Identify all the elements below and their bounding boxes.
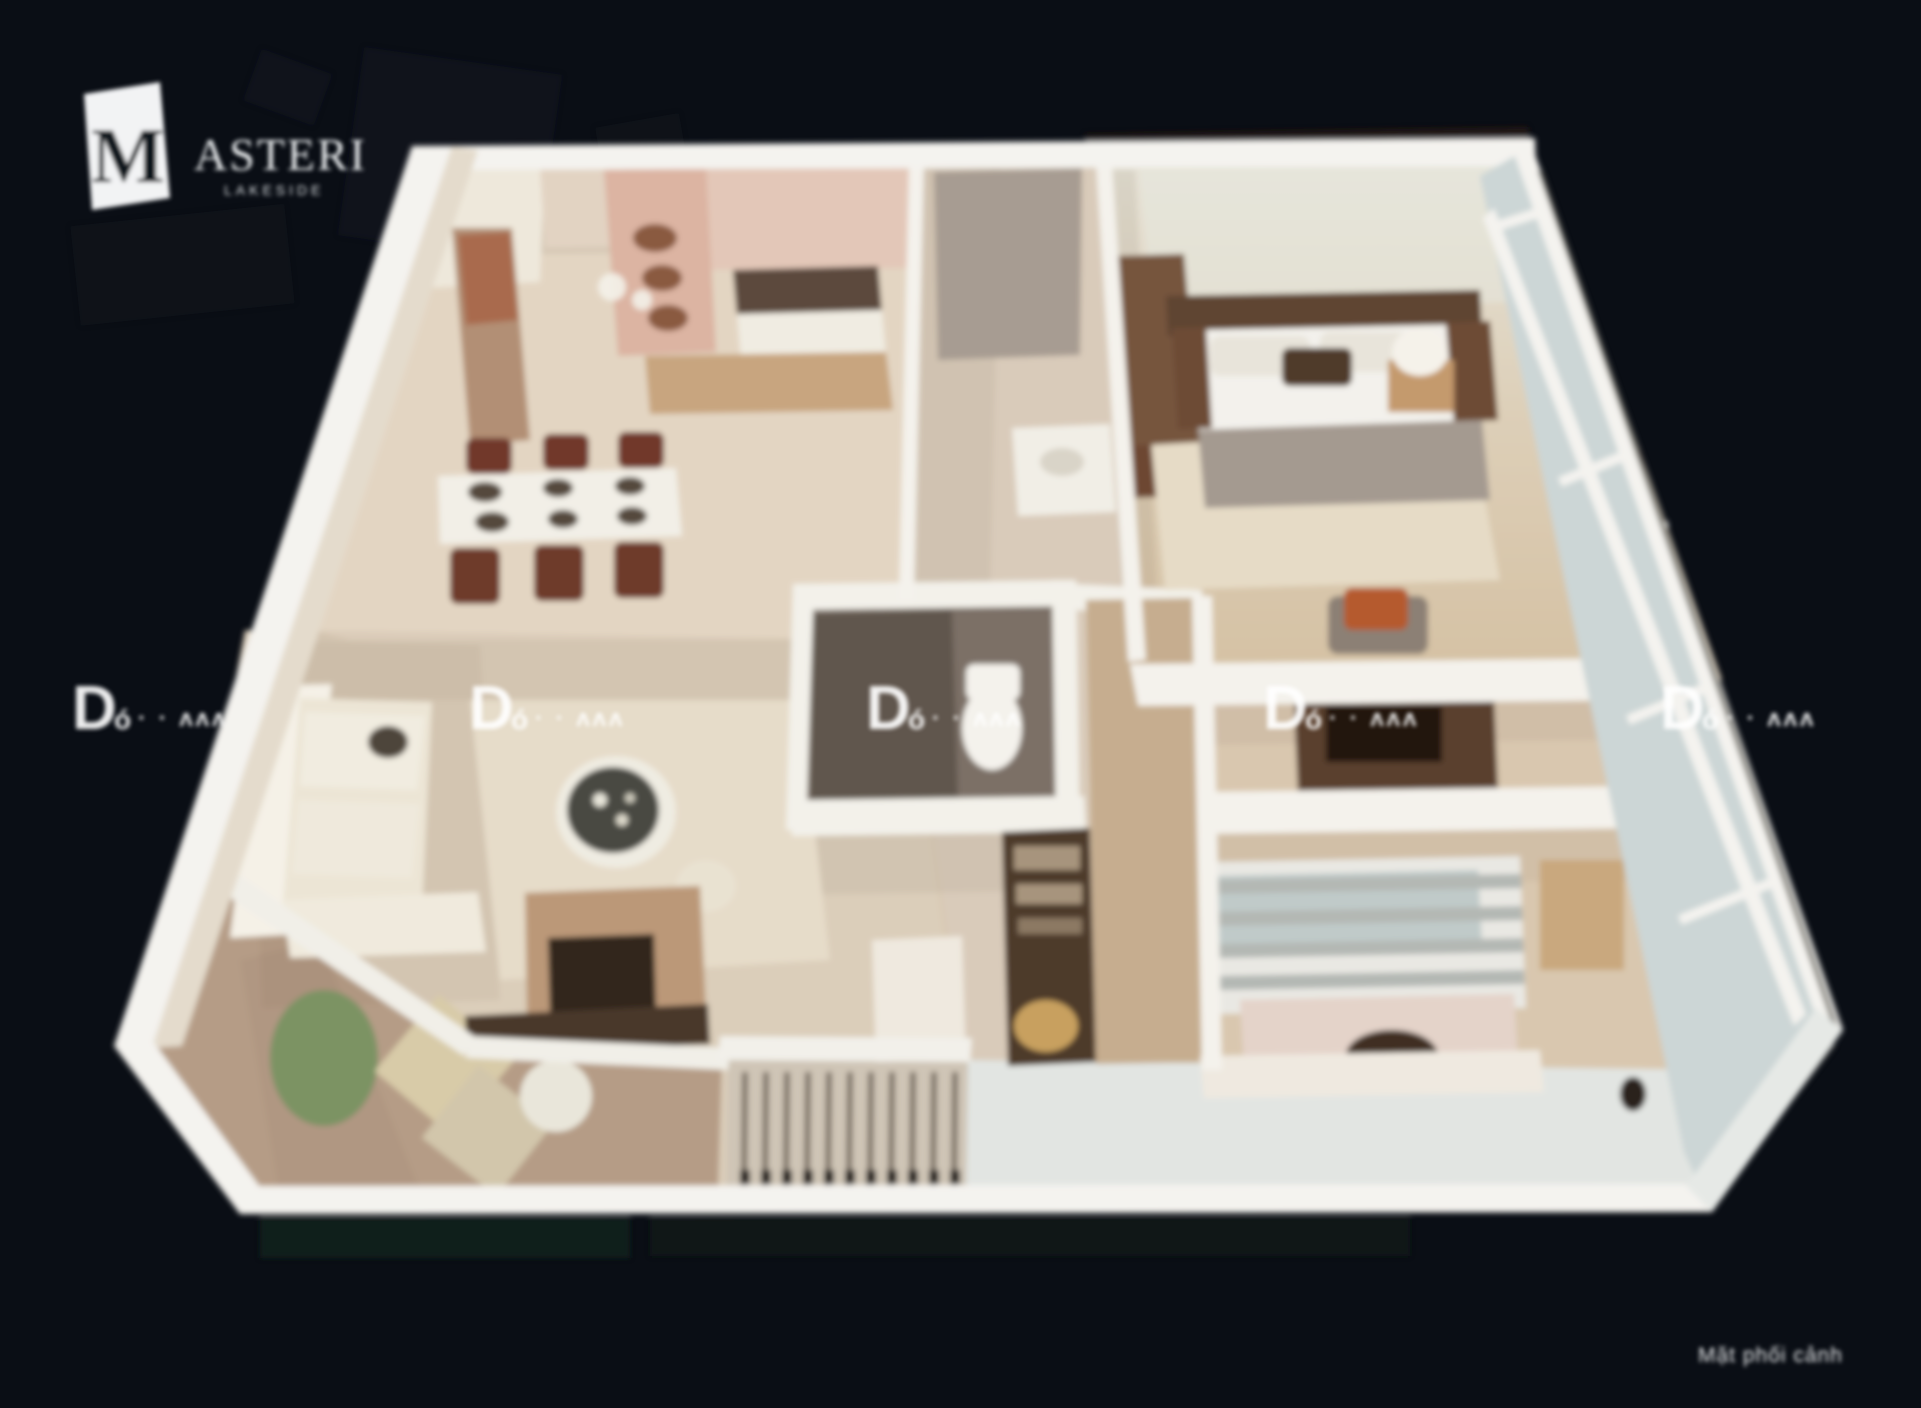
- svg-text:ASTERI: ASTERI: [194, 129, 367, 180]
- svg-text:D: D: [469, 674, 514, 743]
- svg-text:ó: ó: [1702, 704, 1719, 735]
- svg-text:ó: ó: [908, 704, 925, 735]
- svg-text:ó: ó: [511, 704, 528, 735]
- svg-text:· · ʌʌᴧ: · · ʌʌᴧ: [1329, 705, 1419, 732]
- svg-text:D: D: [1263, 674, 1308, 743]
- svg-text:· · ʌʌᴧ: · · ʌʌᴧ: [535, 705, 625, 732]
- svg-text:· · ʌʌᴧ: · · ʌʌᴧ: [1726, 705, 1816, 732]
- svg-text:LAKESIDE: LAKESIDE: [224, 182, 324, 198]
- svg-text:· · ʌʌᴧ: · · ʌʌᴧ: [138, 705, 228, 732]
- svg-text:D: D: [72, 674, 117, 743]
- svg-text:ó: ó: [1305, 704, 1322, 735]
- svg-text:· · ʌʌᴧ: · · ʌʌᴧ: [932, 705, 1022, 732]
- svg-text:Mặt phối cảnh: Mặt phối cảnh: [1698, 1344, 1843, 1367]
- svg-text:D: D: [866, 674, 911, 743]
- svg-text:ó: ó: [114, 704, 131, 735]
- svg-text:M: M: [91, 112, 165, 199]
- svg-text:D: D: [1660, 674, 1705, 743]
